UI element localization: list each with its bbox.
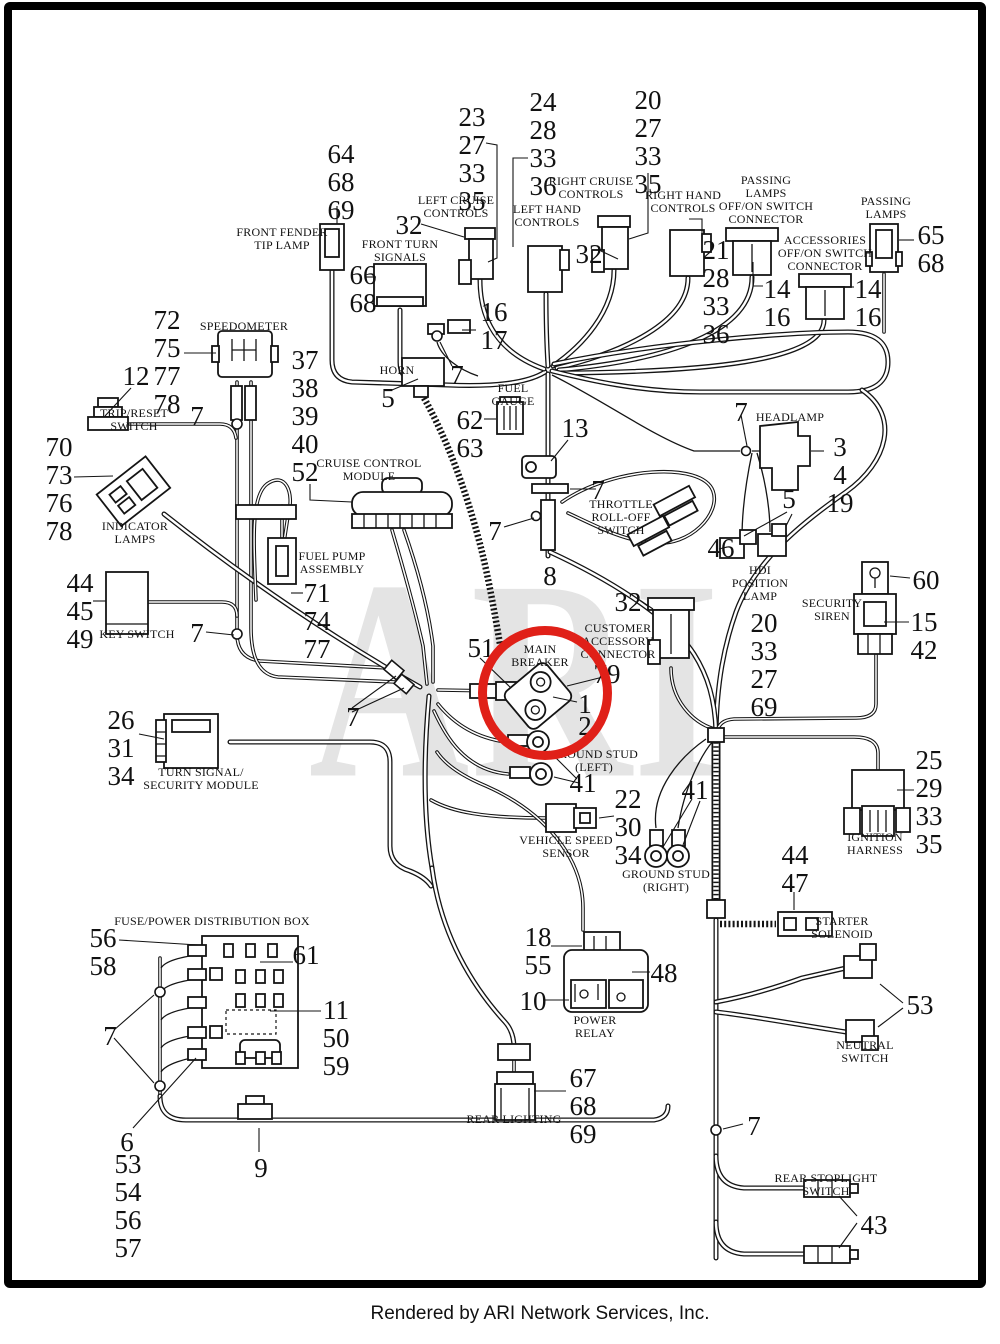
footer-credit: Rendered by ARI Network Services, Inc.	[371, 1303, 710, 1325]
wiring-diagram-page: ARI	[0, 0, 1000, 1344]
page-border	[4, 2, 986, 1288]
